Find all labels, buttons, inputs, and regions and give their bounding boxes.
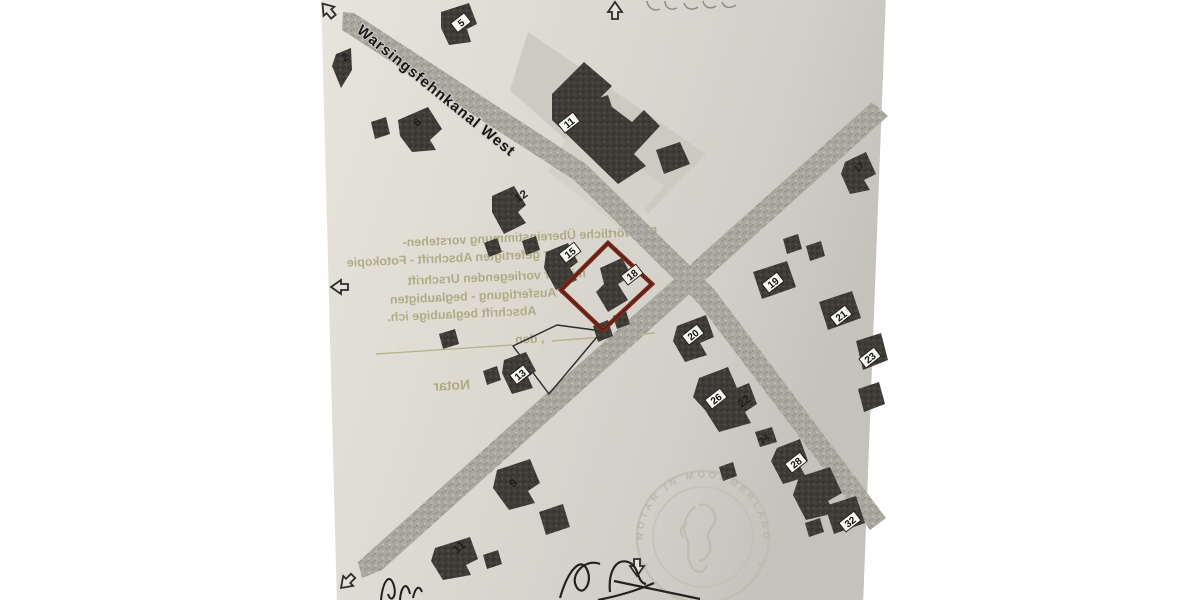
notar-label: Notar [433,376,471,394]
cadastral-map-canvas: Die wörtliche Übereinstimmung vorstehen-… [0,0,1200,600]
seal-dot [758,563,762,567]
scanned-map-document: Die wörtliche Übereinstimmung vorstehen-… [0,0,1200,600]
